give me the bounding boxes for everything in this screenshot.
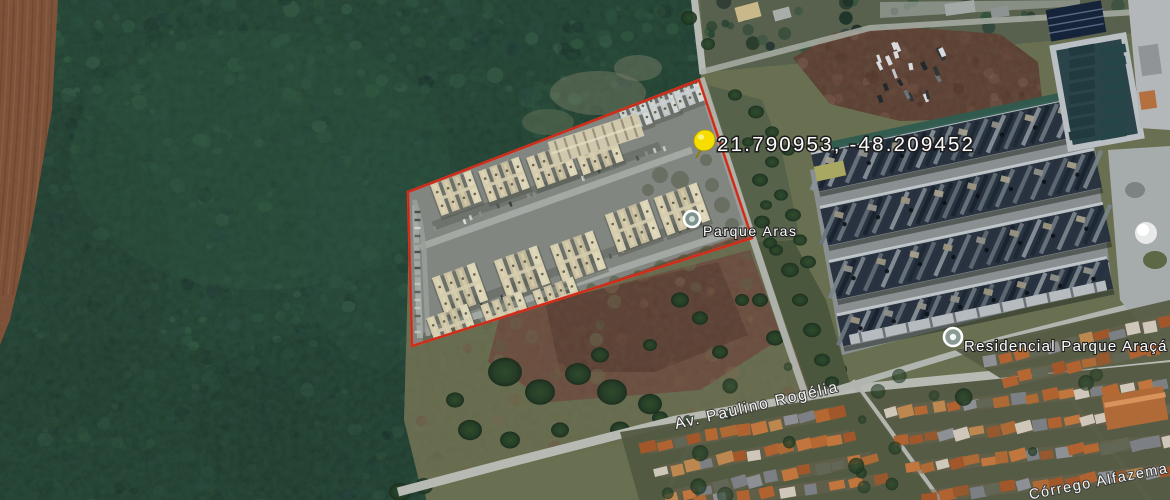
svg-text:Residencial Parque Araçá: Residencial Parque Araçá: [964, 338, 1168, 355]
svg-text:21.790953, -48.209452: 21.790953, -48.209452: [717, 133, 975, 156]
svg-text:Parque Aras: Parque Aras: [703, 223, 798, 239]
